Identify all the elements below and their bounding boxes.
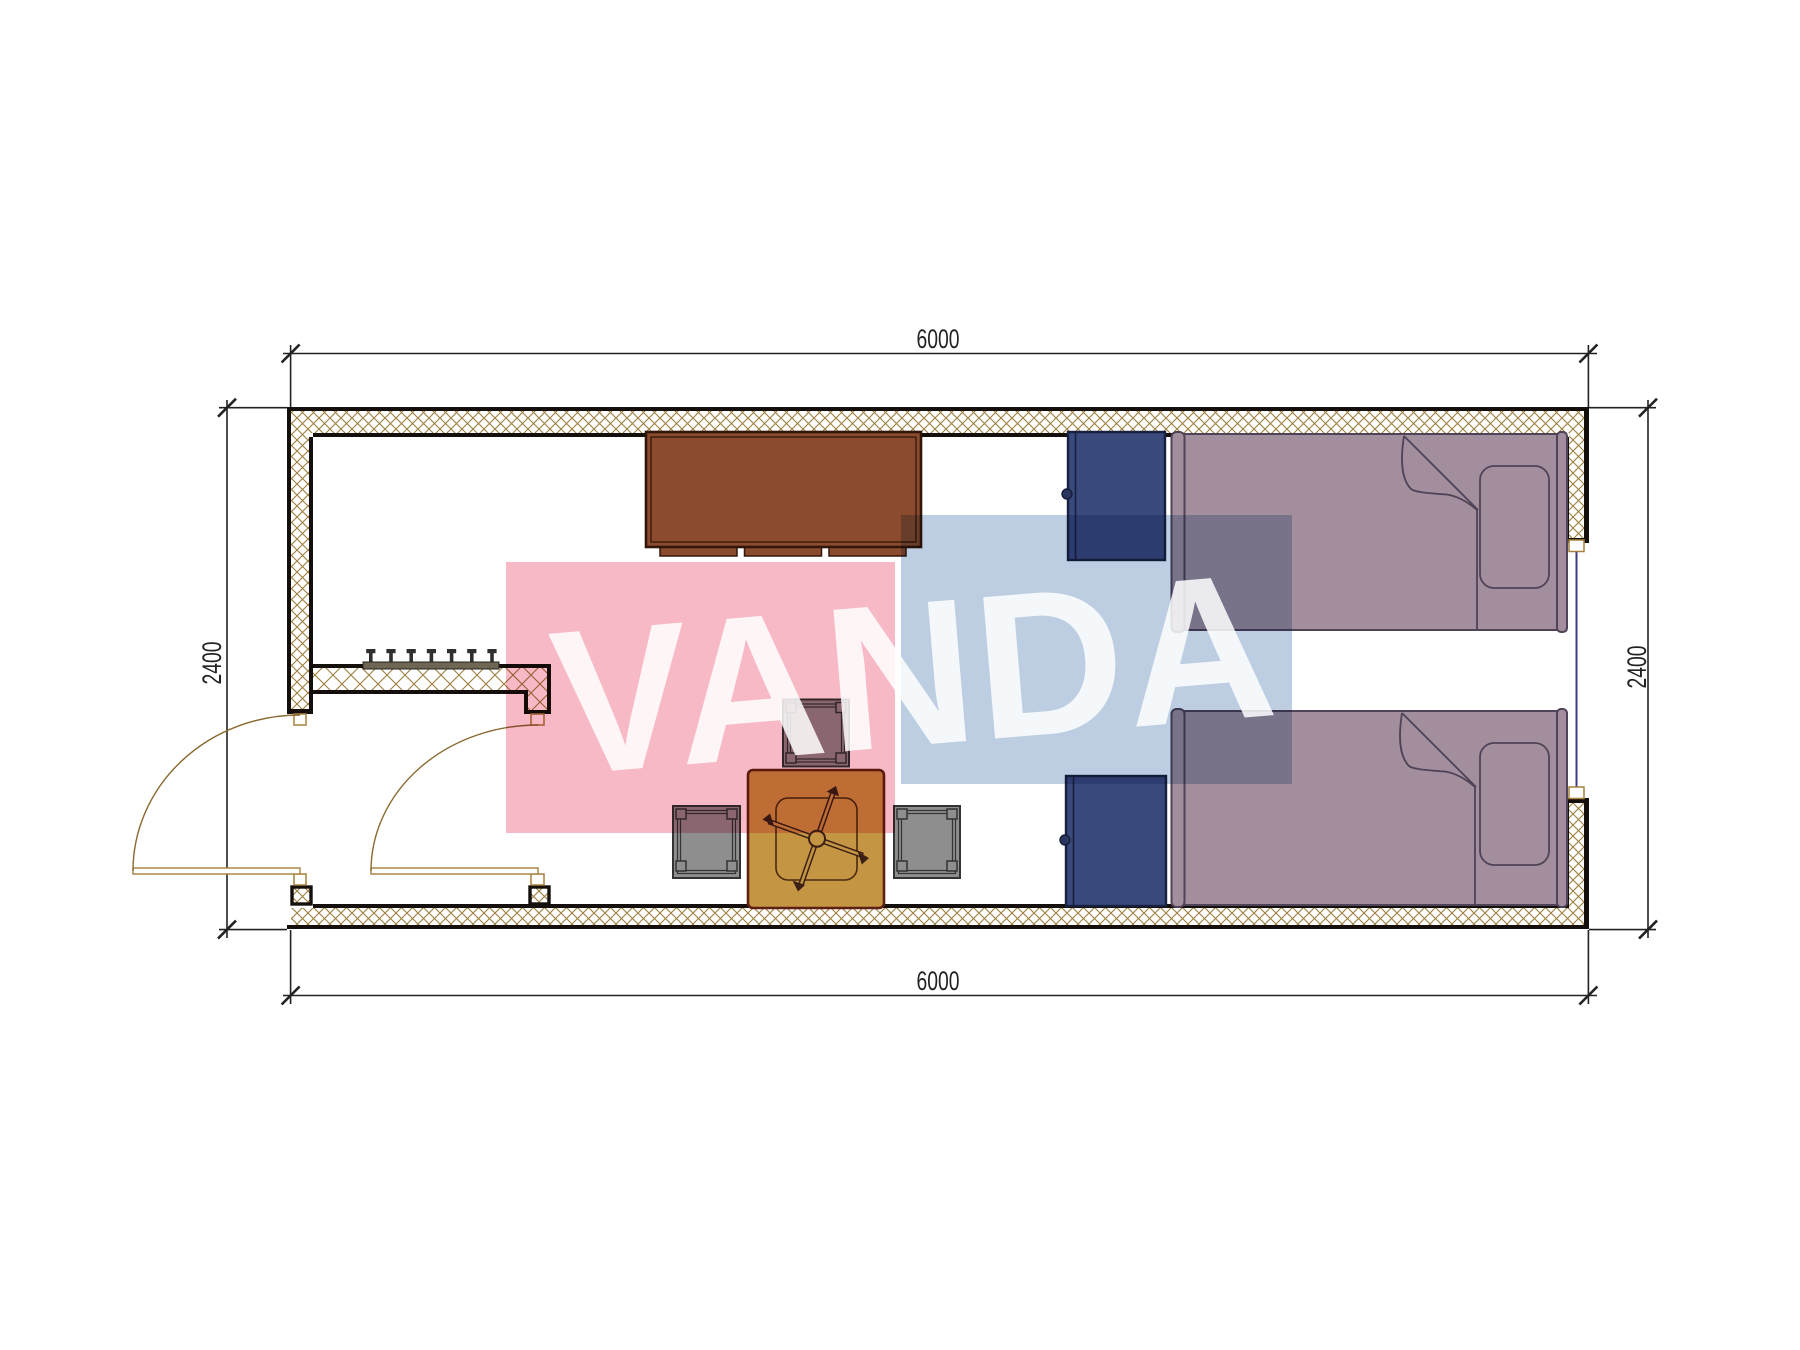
svg-text:6000: 6000 [917,324,960,354]
svg-text:2400: 2400 [1622,646,1652,689]
svg-text:2400: 2400 [197,642,227,685]
svg-text:6000: 6000 [917,966,960,996]
